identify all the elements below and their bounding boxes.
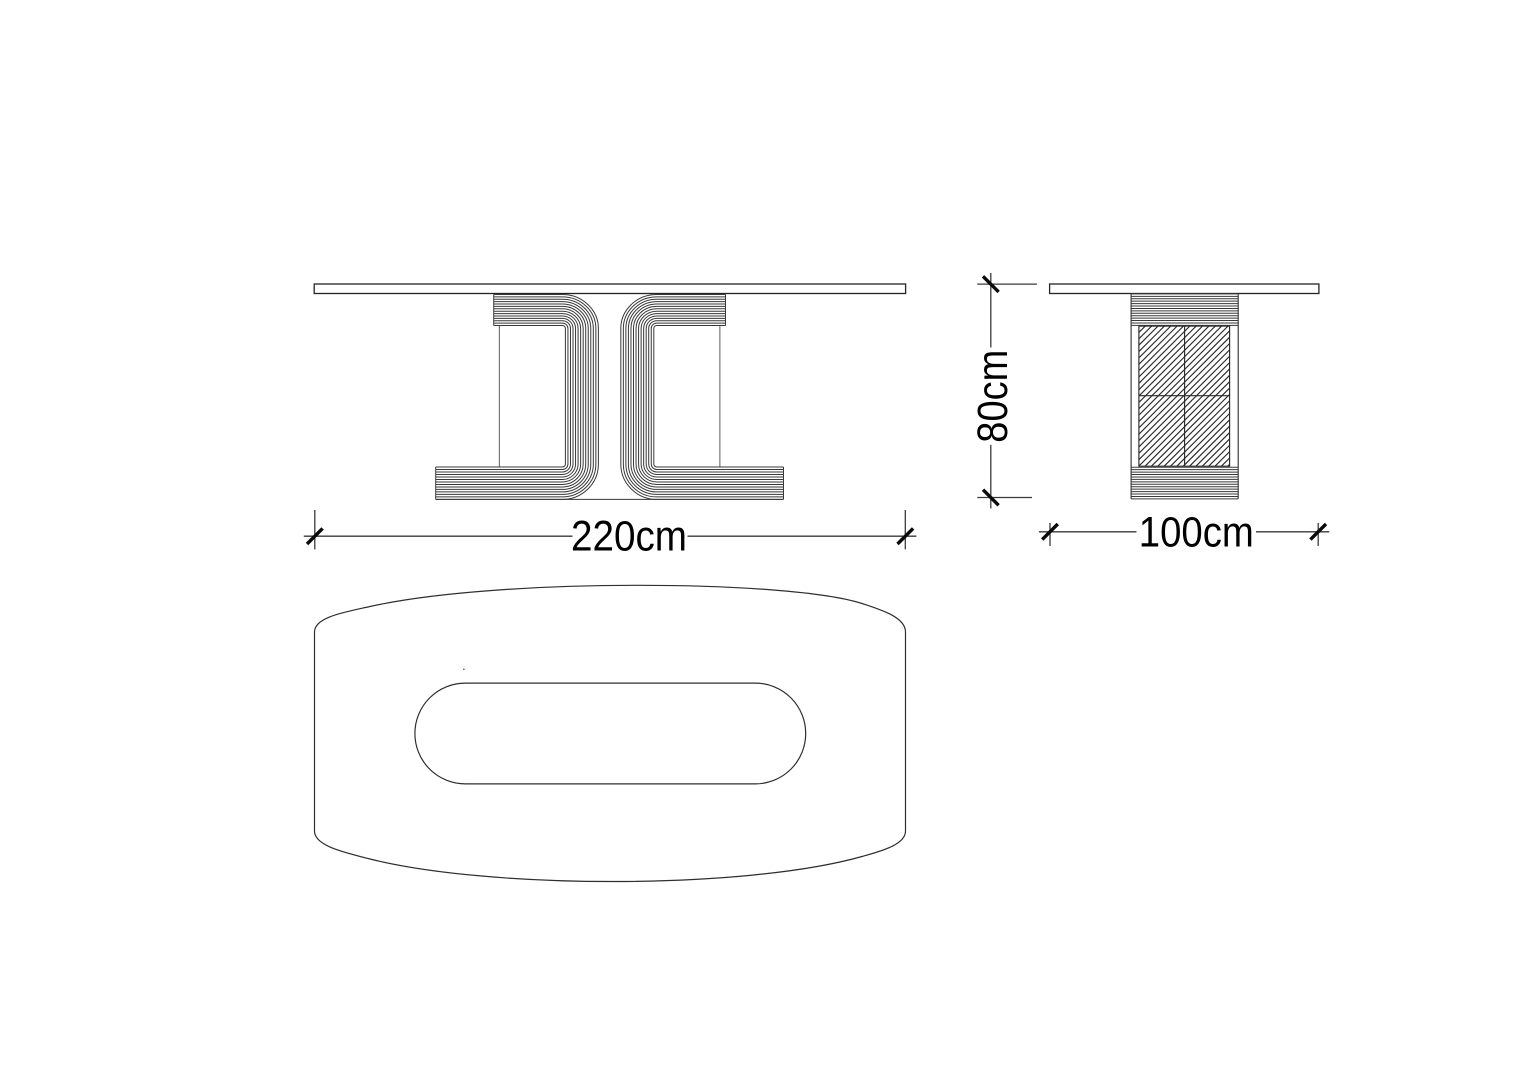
svg-text:100cm: 100cm <box>1139 509 1254 557</box>
svg-text:80cm: 80cm <box>969 350 1017 443</box>
svg-text:220cm: 220cm <box>571 512 687 560</box>
